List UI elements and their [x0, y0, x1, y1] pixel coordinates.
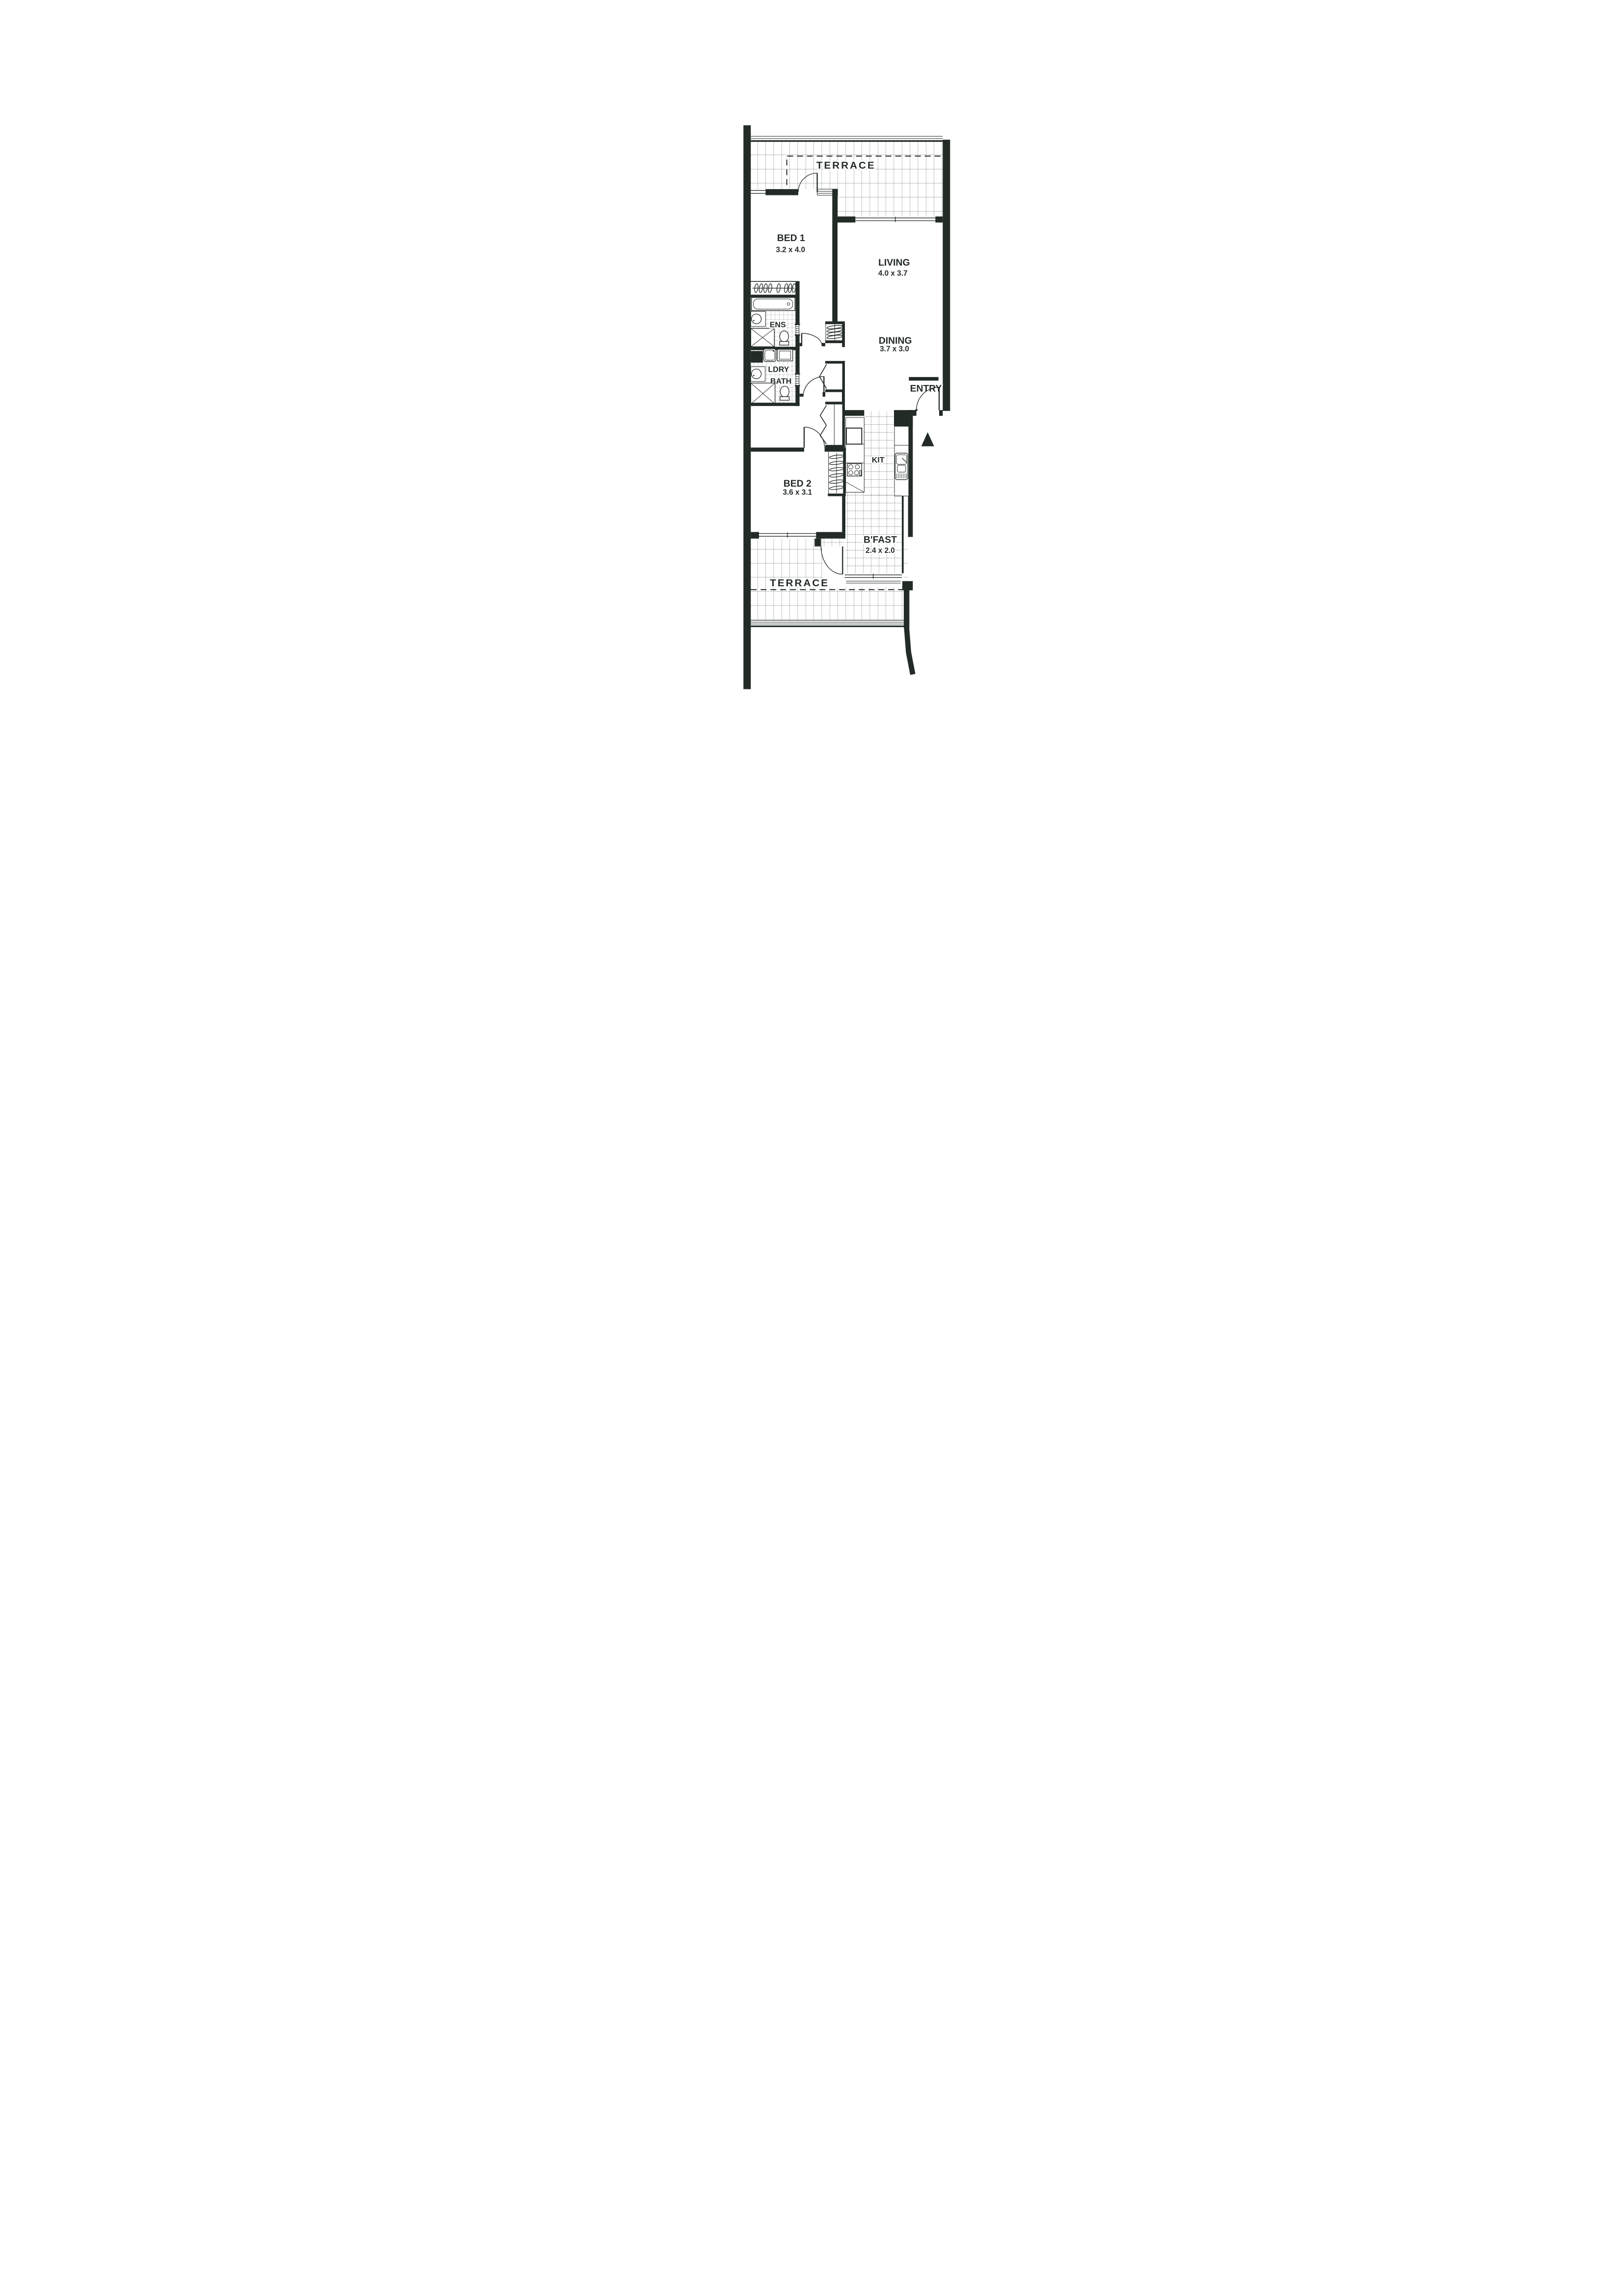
east-terrace-wall — [904, 587, 909, 628]
tap — [773, 351, 774, 352]
wet-area-east-wall — [795, 281, 800, 406]
wet-areas: ENS LDRY BATH — [751, 281, 800, 406]
cistern — [780, 397, 789, 400]
bed2-dimensions: 3.6 x 3.1 — [783, 489, 812, 497]
bath-sliding-door — [795, 373, 800, 386]
hall-door — [800, 333, 825, 346]
bed2-robe — [828, 452, 845, 496]
bath-basin — [751, 367, 765, 382]
bed1-robe — [751, 281, 796, 298]
kitchen-sink — [895, 453, 908, 480]
living-north-wall-west — [838, 217, 855, 222]
bathtub — [752, 298, 795, 311]
ldry-label: LDRY — [768, 366, 789, 374]
bfast-terrace-door — [821, 547, 842, 574]
terrace-bottom-fence — [751, 621, 908, 627]
bed1-north-wall — [765, 189, 798, 195]
ens-sliding-door — [795, 324, 800, 336]
entry-label: ENTRY — [910, 384, 942, 394]
kitchen-north-wall-west — [845, 410, 864, 416]
terrace-bottom-tiles-south — [822, 587, 908, 620]
terrace-top-label: TERRACE — [816, 160, 876, 171]
fridge — [846, 428, 862, 444]
living-label: LIVING — [878, 258, 910, 268]
dining-dimensions: 3.7 x 3.0 — [880, 345, 909, 354]
bfast-door-strip-tiles — [822, 539, 844, 547]
bifold-doors — [820, 406, 827, 444]
kit-label: KIT — [872, 456, 885, 465]
bed2-north-wall-west — [751, 448, 804, 452]
door-swing-arc — [821, 547, 842, 574]
entry-east-jamb — [939, 410, 943, 416]
ens-shower — [751, 328, 774, 347]
robe-south-wall — [751, 295, 796, 298]
ens-basin — [751, 311, 765, 327]
hall-and-closets — [800, 322, 845, 448]
living-terrace-window — [855, 217, 935, 222]
bfast-tiles — [846, 492, 902, 574]
kitchen-left-bench — [846, 417, 865, 492]
bed2-north-wall-east — [825, 448, 846, 452]
site-boundary-angled-wall — [907, 628, 913, 675]
living-dimensions: 4.0 x 3.7 — [878, 270, 908, 278]
bed2-bfast-wall — [842, 496, 845, 539]
bed1-terrace-window — [751, 191, 765, 193]
bed2-terrace-window — [759, 532, 816, 538]
terrace-bottom-tiles-east — [904, 539, 908, 587]
bfast-east-wall — [902, 496, 904, 573]
terrace-top: TERRACE — [751, 137, 943, 217]
living-north-wall-east — [935, 217, 943, 222]
kitchen-walkway-tiles — [864, 411, 894, 496]
west-boundary-wall — [743, 125, 751, 689]
living-dining: LIVING 4.0 x 3.7 DINING 3.7 x 3.0 — [838, 217, 943, 354]
entry-area: ENTRY — [909, 377, 943, 446]
dining-label: DINING — [879, 336, 912, 346]
terrace-bottom-label: TERRACE — [770, 577, 829, 589]
cistern — [780, 342, 789, 345]
bath-toilet — [780, 386, 789, 401]
bfast-dimensions: 2.4 x 2.0 — [866, 547, 895, 555]
bath-shower — [751, 383, 775, 404]
bath-south-wall — [751, 403, 799, 406]
bfast-label: B'FAST — [864, 535, 897, 546]
kitchen-right-bench — [894, 426, 909, 496]
hall-robe-closet — [825, 322, 845, 347]
laundry-tub — [763, 349, 776, 361]
east-boundary-wall — [943, 140, 950, 411]
bed2-south-wall-east — [816, 532, 843, 539]
terrace-top-tiles-right — [838, 142, 943, 217]
hinge-pin — [915, 409, 918, 411]
floor-plan-drawing: TERRACE BED 1 3.2 x 4.0 — [541, 0, 1082, 765]
bfast-terrace-window — [845, 574, 902, 583]
washing-machine — [777, 350, 792, 361]
ldry-bench-block — [751, 351, 763, 363]
floor-plan-page: TERRACE BED 1 3.2 x 4.0 — [541, 0, 1082, 765]
nook-bifold-closet — [820, 402, 845, 447]
ens-toilet — [780, 331, 789, 345]
closet-wall-link — [842, 392, 845, 402]
cooktop — [847, 464, 862, 476]
bed2-label: BED 2 — [784, 479, 811, 489]
bed1-dimensions: 3.2 x 4.0 — [776, 246, 805, 254]
bed1-east-wall — [832, 189, 838, 322]
door-swing-arc — [802, 333, 822, 346]
entry-shelf — [909, 377, 938, 381]
entry-direction-arrow-icon — [921, 432, 934, 446]
bed2-south-wall-west — [751, 532, 759, 539]
drainer — [897, 473, 907, 478]
bed1-label: BED 1 — [777, 233, 805, 244]
ens-label: ENS — [770, 321, 786, 329]
